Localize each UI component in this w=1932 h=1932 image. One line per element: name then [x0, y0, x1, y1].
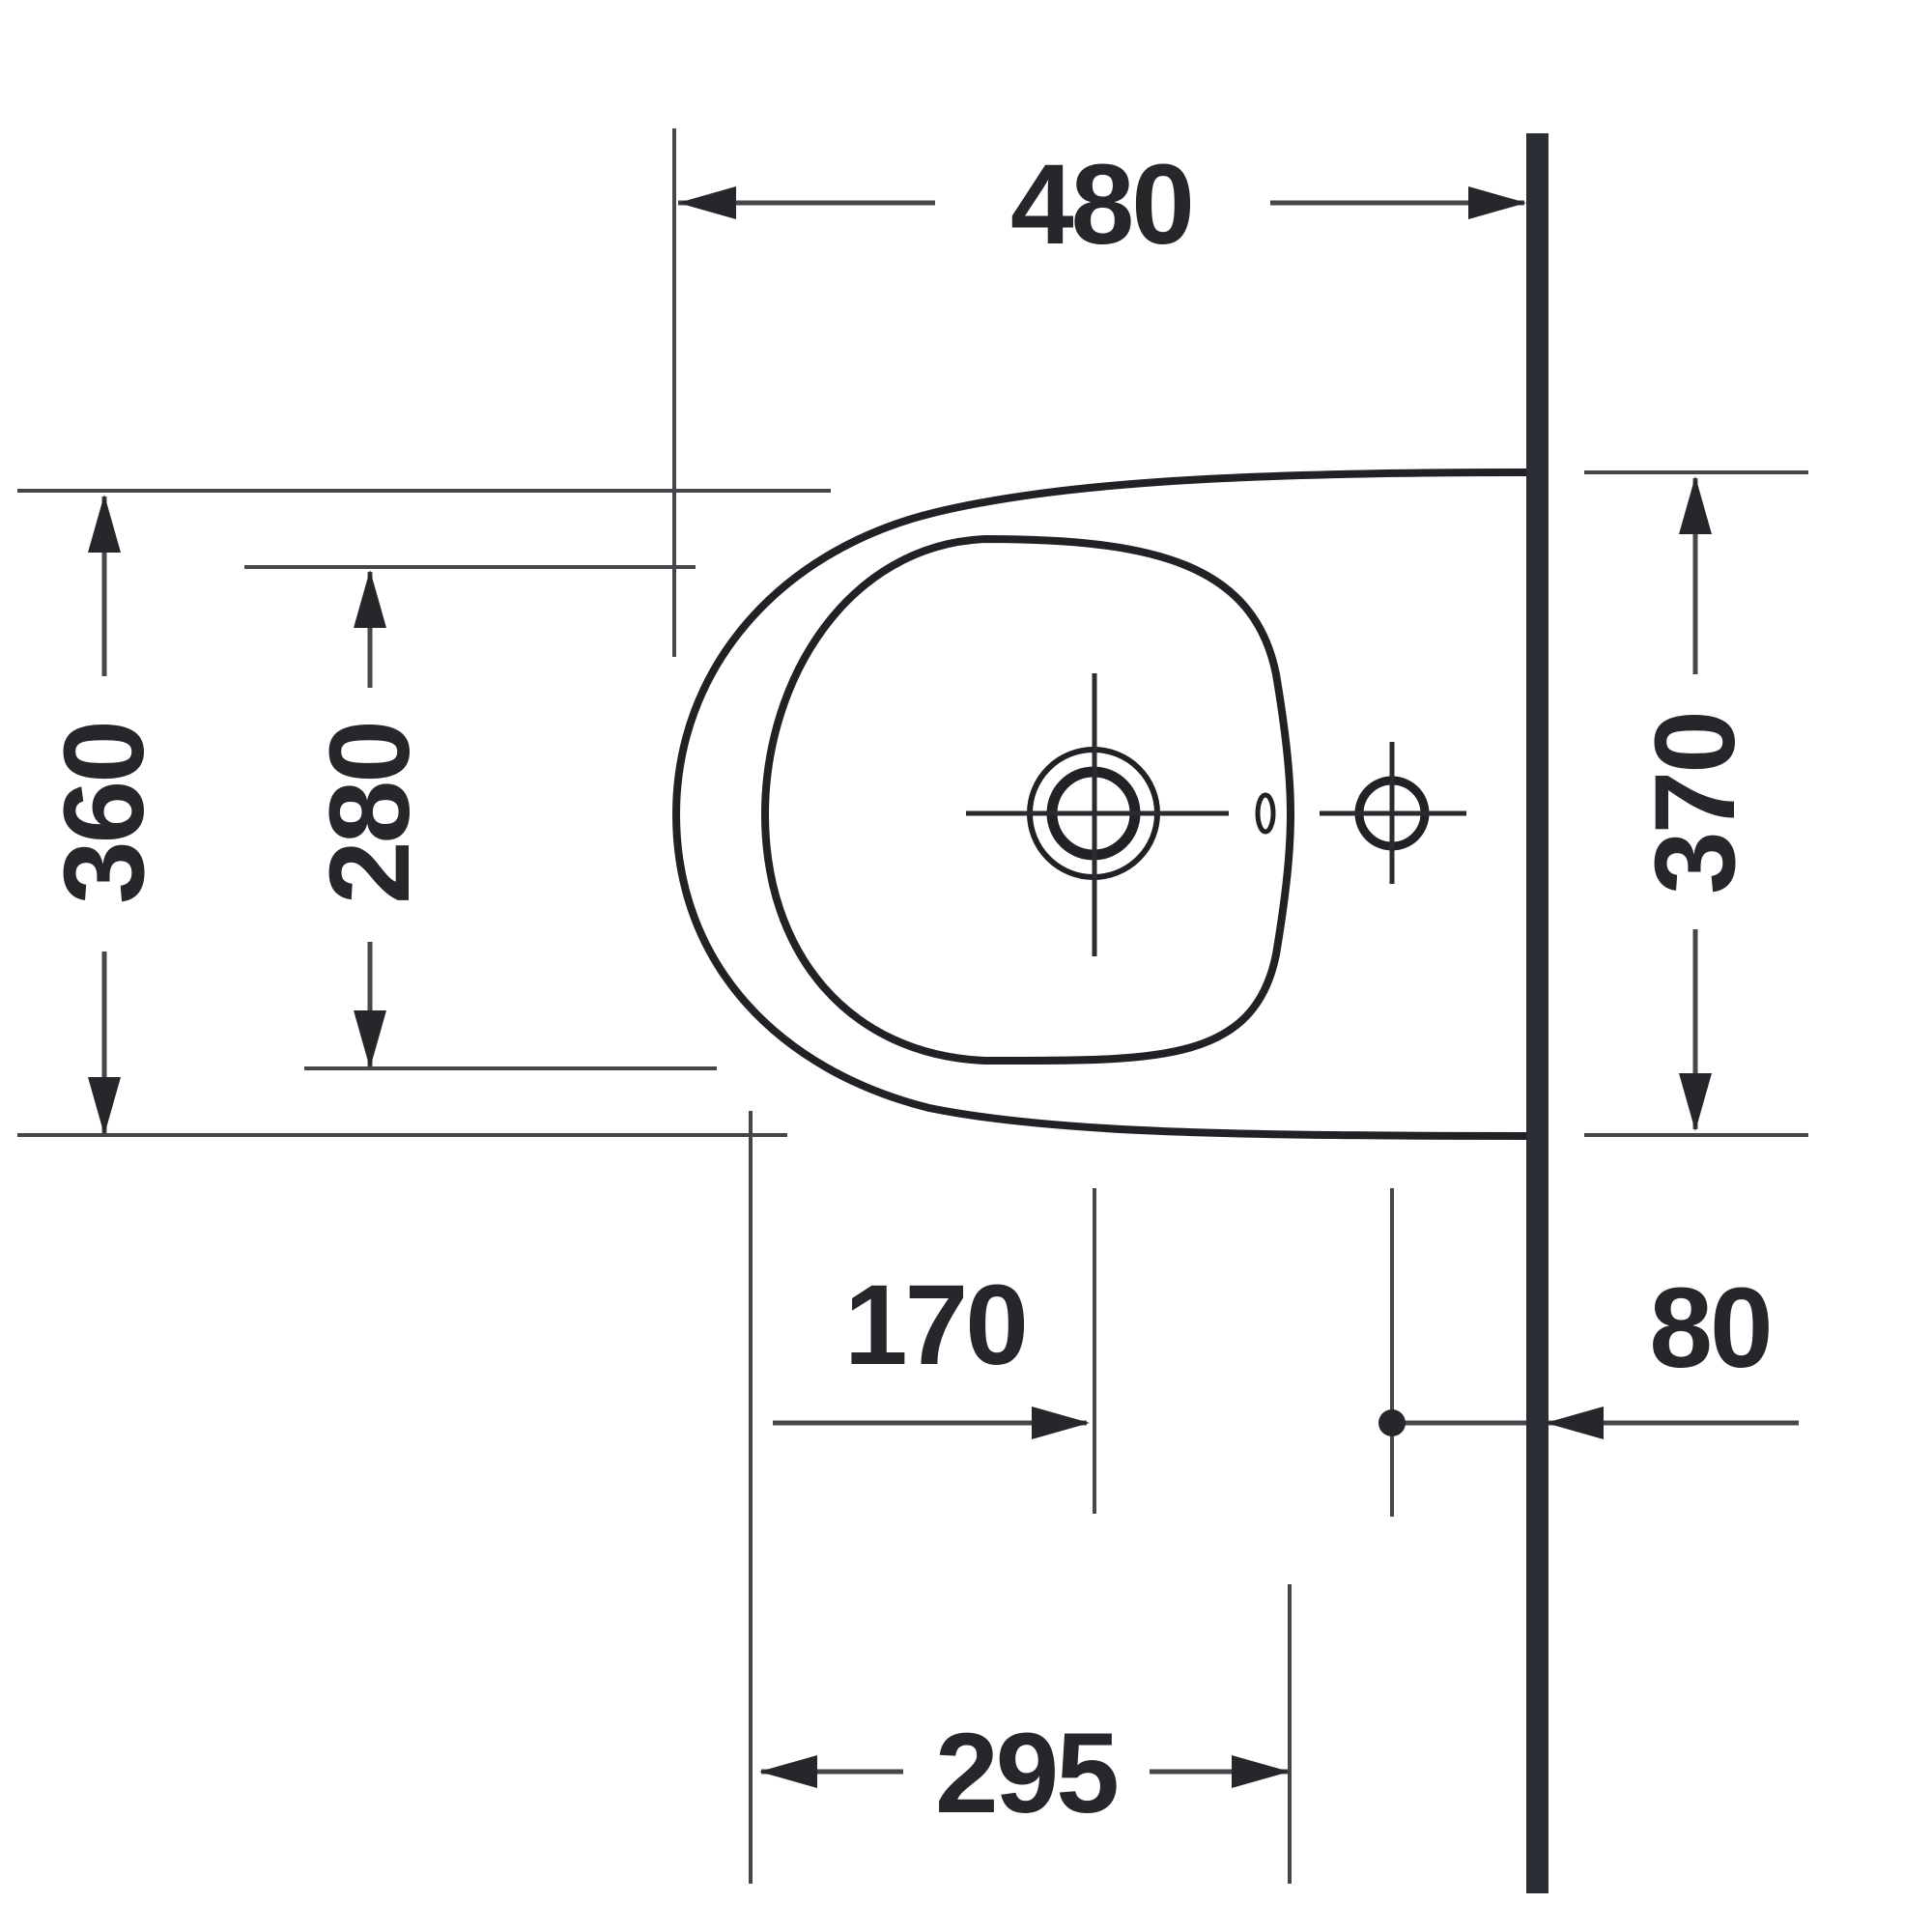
- arrow-370-up: [1679, 476, 1712, 534]
- dim-label-280: 280: [306, 723, 434, 904]
- bidet-outer-outline: [676, 472, 1526, 1136]
- dim-label-295: 295: [935, 1710, 1117, 1837]
- arrow-480-right: [1468, 186, 1526, 219]
- dim-label-480: 480: [1010, 141, 1192, 269]
- arrowheads: [88, 186, 1712, 1788]
- overflow-slot: [1258, 795, 1273, 832]
- dimension-drawing-canvas: 480 360 280 370 170 80 295: [0, 0, 1932, 1932]
- arrow-295-right: [1232, 1755, 1290, 1788]
- arrow-480-left: [678, 186, 736, 219]
- arrow-295-left: [759, 1755, 817, 1788]
- fixing-reference-dot: [1378, 1409, 1406, 1436]
- arrow-280-up: [354, 570, 386, 628]
- dim-label-370: 370: [1632, 713, 1759, 895]
- bidet-inner-rim: [765, 539, 1291, 1061]
- bidet-technical-drawing: 480 360 280 370 170 80 295: [0, 0, 1932, 1932]
- arrow-170-right: [1032, 1406, 1090, 1439]
- arrow-360-down: [88, 1077, 121, 1135]
- wall-line: [1526, 133, 1548, 1893]
- fixing-hole: [1320, 742, 1466, 884]
- arrow-360-up: [88, 495, 121, 553]
- arrow-80-left: [1546, 1406, 1604, 1439]
- tap-hole: [966, 673, 1229, 956]
- dim-label-80: 80: [1649, 1264, 1770, 1392]
- bidet-body: [676, 472, 1526, 1136]
- dim-label-360: 360: [41, 723, 168, 904]
- arrow-370-down: [1679, 1073, 1712, 1131]
- dim-label-170: 170: [844, 1262, 1026, 1389]
- dimension-labels: 480 360 280 370 170 80 295: [41, 141, 1771, 1837]
- arrow-280-down: [354, 1010, 386, 1068]
